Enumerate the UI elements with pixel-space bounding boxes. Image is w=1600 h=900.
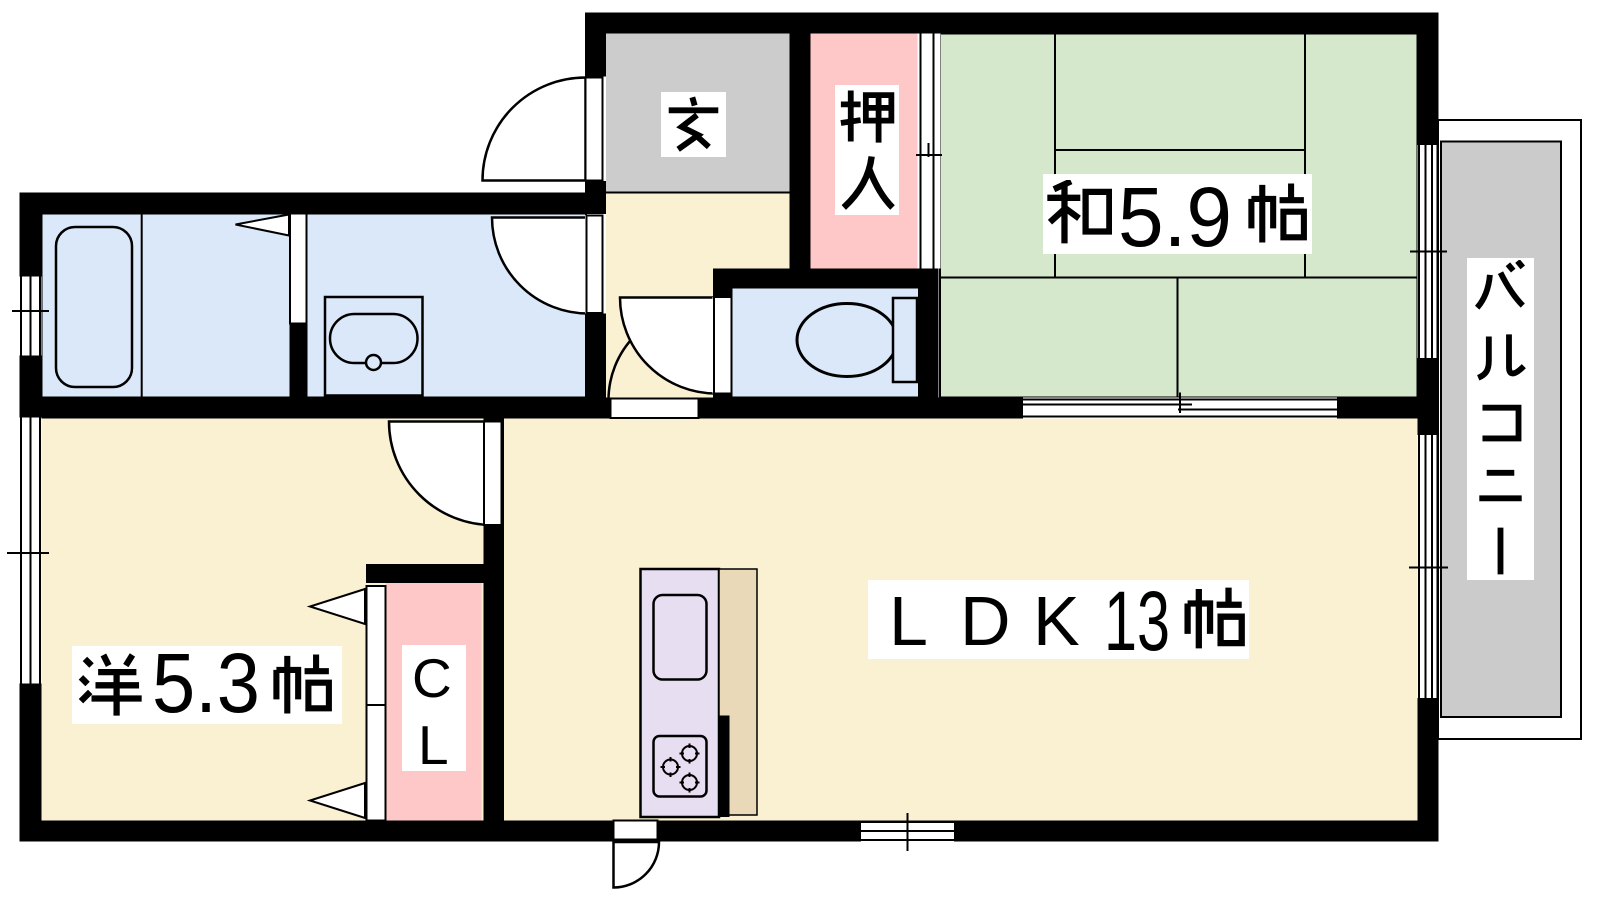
svg-text:L: L — [889, 582, 928, 660]
svg-text:K: K — [1033, 582, 1080, 660]
svg-text:5.3: 5.3 — [152, 636, 260, 730]
svg-text:L: L — [418, 714, 449, 776]
svg-text:C: C — [412, 647, 452, 709]
svg-text:D: D — [960, 582, 1011, 660]
svg-text:13: 13 — [1104, 574, 1170, 668]
svg-text:5.9: 5.9 — [1118, 170, 1232, 264]
